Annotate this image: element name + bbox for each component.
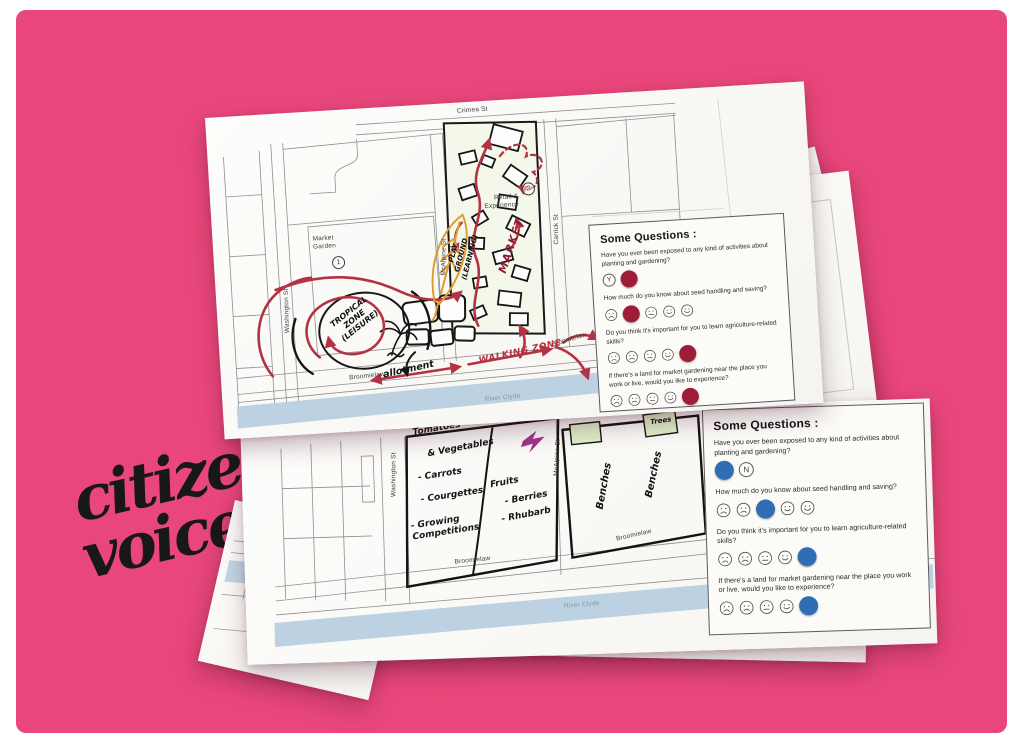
response-dot-sticker bbox=[622, 305, 640, 323]
smiley-face-icon bbox=[604, 308, 618, 322]
smiley-face-icon bbox=[610, 395, 624, 409]
label-retail-experience: Retail & Experience bbox=[466, 193, 519, 212]
yn-option: Y bbox=[602, 274, 616, 288]
smiley-face-icon bbox=[716, 502, 731, 517]
label-market-garden-line2: Garden bbox=[313, 242, 336, 252]
smiley-face-icon bbox=[607, 351, 621, 365]
lightning-bolt-icon bbox=[520, 430, 545, 453]
question-text: Have you ever been exposed to any kind o… bbox=[714, 433, 911, 458]
question-scale: N bbox=[715, 455, 916, 480]
question-scale bbox=[717, 544, 918, 569]
question-text: Do you think it's important for you to l… bbox=[717, 522, 914, 547]
smiley-face-icon bbox=[757, 550, 772, 565]
response-dot-sticker bbox=[715, 461, 735, 481]
workshop-sheet-middle: Washington St McAlpine St Broomielaw Bro… bbox=[240, 398, 937, 665]
response-dot-sticker bbox=[681, 388, 699, 406]
questions-title: Some Questions : bbox=[713, 413, 914, 433]
smiley-face-icon bbox=[719, 601, 734, 616]
response-dot-sticker bbox=[799, 596, 819, 616]
workshop-sheet-top: Crimea St Washington St McAlpine St Carr… bbox=[205, 81, 824, 439]
smiley-face-icon bbox=[780, 500, 795, 515]
questions-panel-red: Some Questions : Have you ever been expo… bbox=[588, 213, 795, 413]
questions-panel-blue: Some Questions : Have you ever been expo… bbox=[702, 403, 931, 636]
smiley-face-icon bbox=[736, 502, 751, 517]
smiley-face-icon bbox=[800, 500, 815, 515]
smiley-face-icon bbox=[737, 551, 752, 566]
smiley-face-icon bbox=[779, 599, 794, 614]
smiley-face-icon bbox=[759, 599, 774, 614]
photo-stage: citizen voice bbox=[0, 0, 1024, 744]
smiley-face-icon bbox=[662, 305, 676, 319]
street-label-washington: Washington St bbox=[390, 445, 397, 505]
response-dot-sticker bbox=[679, 345, 697, 363]
response-dot-sticker bbox=[620, 270, 638, 288]
smiley-face-icon bbox=[717, 551, 732, 566]
smiley-face-icon bbox=[739, 600, 754, 615]
yn-option: N bbox=[739, 462, 754, 477]
response-dot-sticker bbox=[797, 547, 817, 567]
question-scale bbox=[719, 593, 920, 618]
smiley-face-icon bbox=[628, 393, 642, 407]
smiley-face-icon bbox=[661, 348, 675, 362]
smiley-face-icon bbox=[625, 350, 639, 364]
response-dot-sticker bbox=[756, 499, 776, 519]
smiley-face-icon bbox=[644, 306, 658, 320]
street-label-carrick: Carrick St bbox=[553, 199, 561, 259]
smiley-face-icon bbox=[777, 550, 792, 565]
smiley-face-icon bbox=[646, 392, 660, 406]
label-market-garden: Market Garden bbox=[312, 234, 336, 252]
smiley-face-icon bbox=[680, 303, 694, 317]
smiley-face-icon bbox=[664, 391, 678, 405]
smiley-face-icon bbox=[643, 349, 657, 363]
question-scale bbox=[716, 494, 917, 519]
question-text: If there's a land for market gardening n… bbox=[718, 571, 915, 596]
